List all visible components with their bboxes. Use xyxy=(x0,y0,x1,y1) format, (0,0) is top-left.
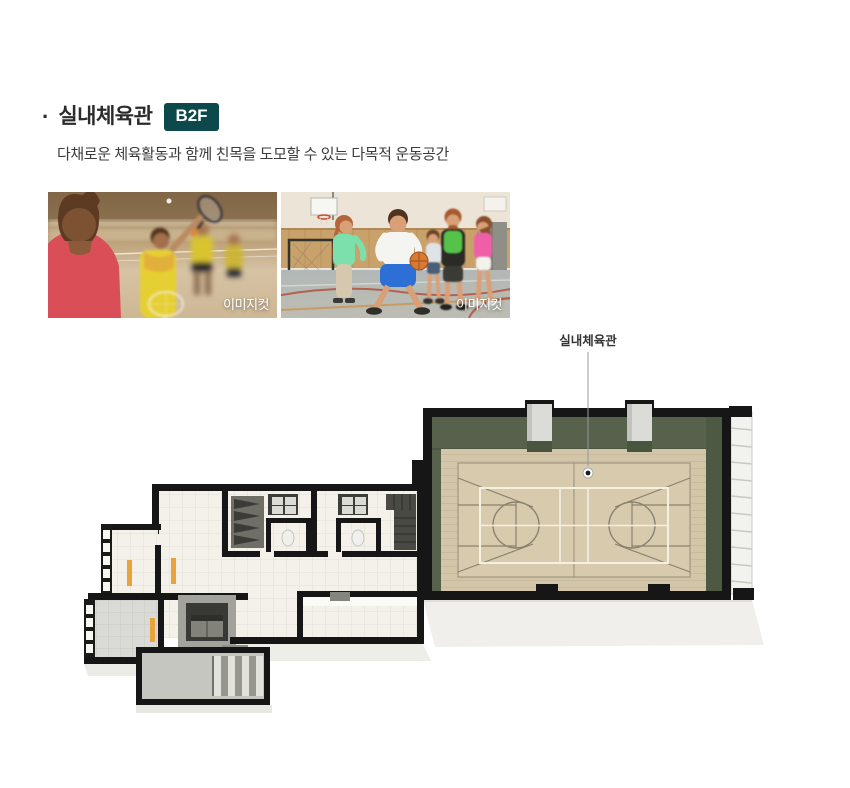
stairs xyxy=(136,647,270,705)
gym-door-frame xyxy=(648,584,670,596)
washstand xyxy=(338,494,368,515)
floor-plan: 실내체육관 xyxy=(0,328,850,788)
basketball-icon xyxy=(410,252,428,270)
watermark-label: 이미지컷 xyxy=(223,294,269,313)
gym-door-frame xyxy=(536,584,558,596)
watermark-label: 이미지컷 xyxy=(456,294,502,313)
badminton-photo: 이미지컷 xyxy=(48,192,277,318)
restrooms xyxy=(222,484,423,557)
urinal-units xyxy=(231,496,264,548)
bench xyxy=(127,560,132,586)
section-title: 실내체육관 xyxy=(58,104,152,129)
stair-steps xyxy=(213,656,263,696)
section-bullet: · xyxy=(42,106,49,128)
photo-row: 이미지컷 xyxy=(48,192,510,318)
basketball-photo: 이미지컷 xyxy=(281,192,510,318)
washstand xyxy=(268,494,298,515)
elevator xyxy=(178,595,236,647)
gym-door-frame xyxy=(412,460,424,488)
door-mat xyxy=(330,592,350,601)
floor-badge: B2F xyxy=(164,103,218,131)
plan-label: 실내체육관 xyxy=(559,333,617,348)
gym-window-wall xyxy=(731,412,752,594)
bench xyxy=(150,618,155,642)
service-block xyxy=(84,484,431,713)
section-description: 다채로운 체육활동과 함께 친목을 도모할 수 있는 다목적 운동공간 xyxy=(57,143,449,164)
ceiling-beam xyxy=(525,400,554,452)
section-header: · 실내체육관 B2F xyxy=(42,103,219,131)
location-dot-icon xyxy=(586,471,591,476)
bench xyxy=(171,558,176,584)
ceiling-beam xyxy=(625,400,654,452)
gym-front-face xyxy=(423,600,764,647)
